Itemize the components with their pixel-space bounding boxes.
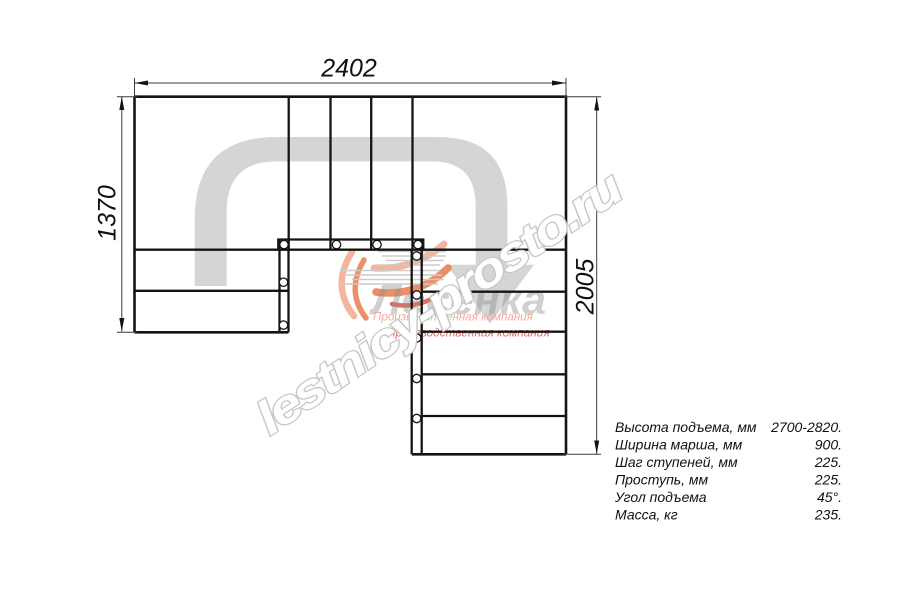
- svg-text:Проступь, мм: Проступь, мм: [615, 472, 709, 488]
- svg-text:2005: 2005: [572, 259, 600, 316]
- svg-text:235.: 235.: [814, 507, 842, 523]
- svg-text:Шаг ступеней, мм: Шаг ступеней, мм: [615, 454, 738, 470]
- svg-text:2700-2820.: 2700-2820.: [770, 419, 842, 435]
- svg-text:Ширина марша, мм: Ширина марша, мм: [615, 437, 743, 453]
- svg-text:900.: 900.: [815, 437, 842, 453]
- svg-text:2402: 2402: [320, 55, 377, 83]
- svg-text:Высота подъема, мм: Высота подъема, мм: [615, 419, 757, 435]
- svg-text:1370: 1370: [94, 185, 122, 241]
- svg-text:225.: 225.: [814, 454, 842, 470]
- svg-text:225.: 225.: [814, 472, 842, 488]
- svg-text:45°.: 45°.: [817, 489, 842, 505]
- svg-text:Угол подъема: Угол подъема: [614, 489, 707, 505]
- svg-text:Масса, кг: Масса, кг: [615, 507, 678, 523]
